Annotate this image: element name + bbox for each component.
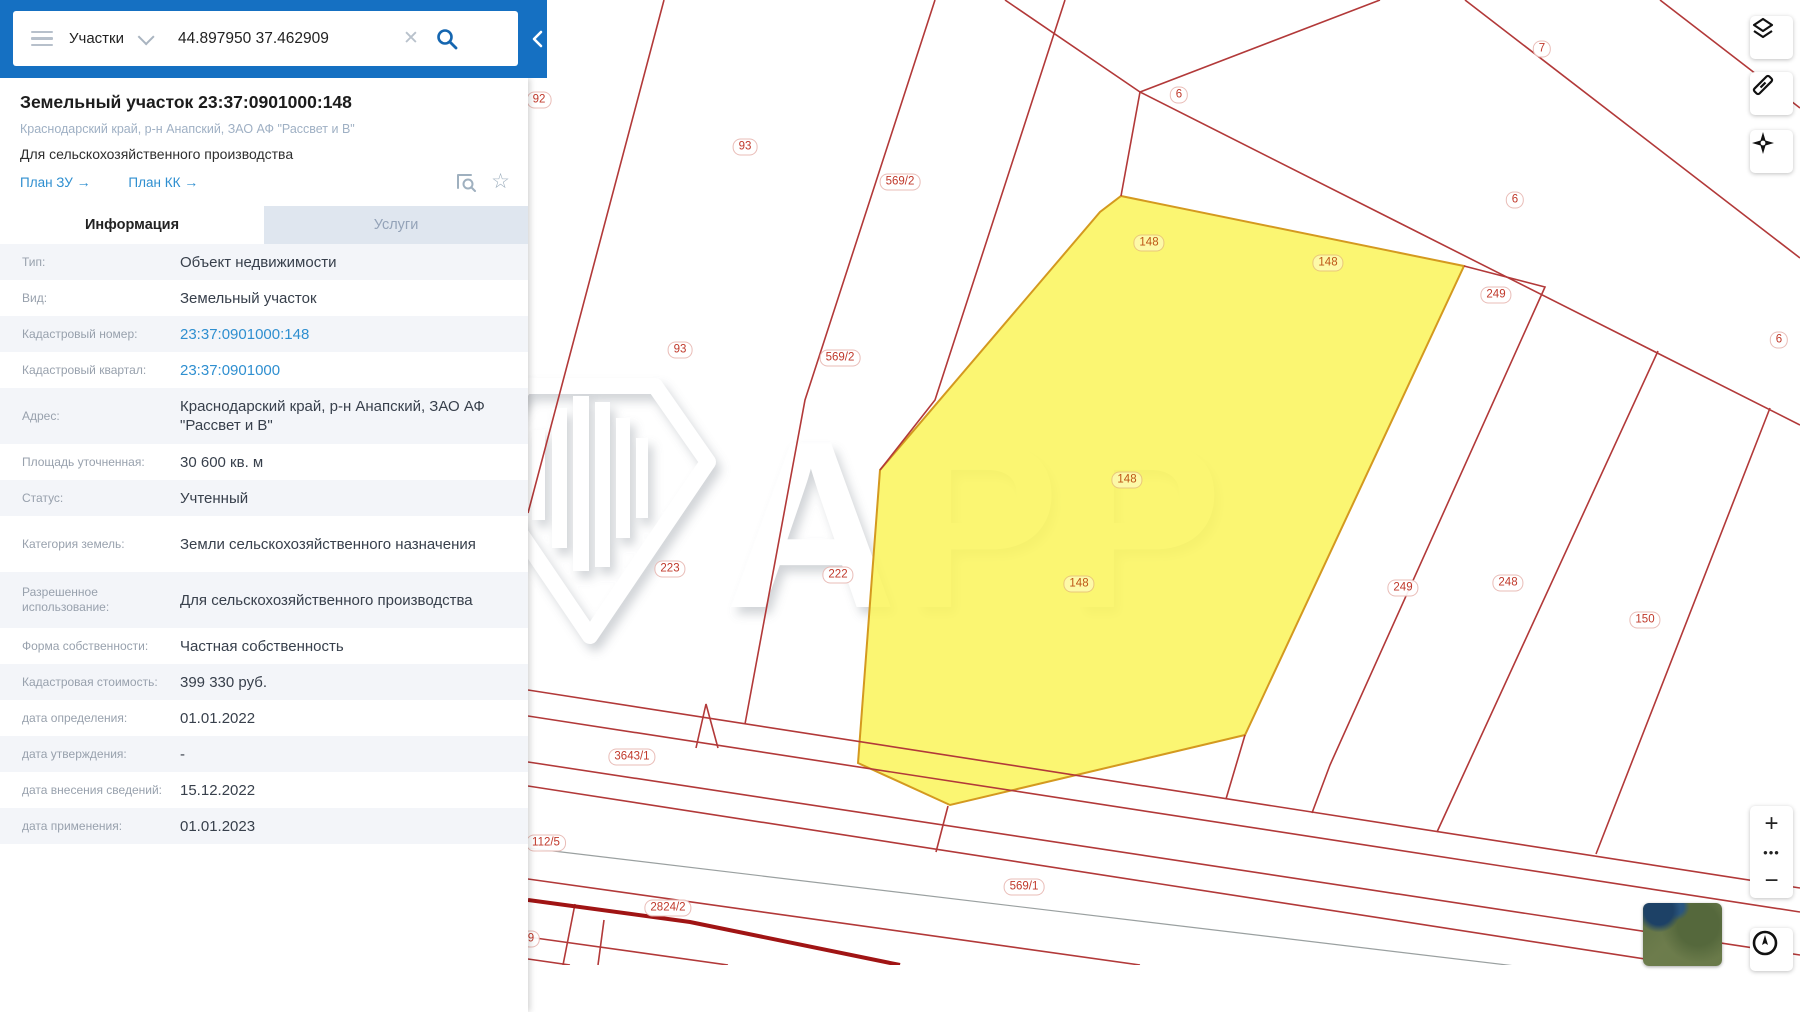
attribute-row: Форма собственности:Частная собственност… xyxy=(0,628,528,664)
attribute-label: Статус: xyxy=(22,491,180,506)
attribute-row: дата определения:01.01.2022 xyxy=(0,700,528,736)
attribute-rows: Тип:Объект недвижимостиВид:Земельный уча… xyxy=(0,244,528,844)
attribute-value: Земли сельскохозяйственного назначения xyxy=(180,535,490,554)
arrow-right-icon: → xyxy=(77,174,91,190)
clear-search-icon[interactable]: ✕ xyxy=(403,29,419,48)
attribute-value-link[interactable]: 23:37:0901000:148 xyxy=(180,325,323,344)
position-icon xyxy=(1750,130,1776,156)
parcel-title: Земельный участок 23:37:0901000:148 xyxy=(20,92,508,113)
selected-parcel-148[interactable] xyxy=(858,196,1464,805)
search-document-button[interactable] xyxy=(455,172,477,192)
locate-button[interactable] xyxy=(1750,130,1793,173)
attribute-row: Кадастровый номер:23:37:0901000:148 xyxy=(0,316,528,352)
attribute-value-link[interactable]: 23:37:0901000 xyxy=(180,361,294,380)
attribute-label: Площадь уточненная: xyxy=(22,455,180,470)
attribute-row: Площадь уточненная:30 600 кв. м xyxy=(0,444,528,480)
search-box: Участки ✕ xyxy=(13,11,518,66)
attribute-label: Кадастровый номер: xyxy=(22,327,180,342)
attribute-label: дата применения: xyxy=(22,819,180,834)
app-window: АРР xyxy=(0,0,1800,1012)
search-category-dropdown[interactable]: Участки xyxy=(69,30,150,47)
search-topbar: Участки ✕ xyxy=(0,0,547,78)
compass-icon xyxy=(1750,928,1780,958)
attribute-label: Форма собственности: xyxy=(22,639,180,654)
search-input[interactable] xyxy=(176,29,395,49)
search-category-label: Участки xyxy=(69,30,124,47)
parcel-address-subtitle: Краснодарский край, р-н Анапский, ЗАО АФ… xyxy=(20,122,508,136)
plan-zu-link[interactable]: План ЗУ → xyxy=(20,175,91,190)
attribute-row: дата внесения сведений:15.12.2022 xyxy=(0,772,528,808)
attribute-label: Кадастровый квартал: xyxy=(22,363,180,378)
menu-icon[interactable] xyxy=(31,27,53,51)
collapse-panel-button[interactable] xyxy=(528,26,547,52)
layers-icon xyxy=(1750,16,1776,42)
ruler-icon xyxy=(1750,72,1776,98)
zoom-levels-button[interactable]: ••• xyxy=(1763,841,1780,863)
attribute-row: Статус:Учтенный xyxy=(0,480,528,516)
attribute-label: Вид: xyxy=(22,291,180,306)
attribute-label: дата утверждения: xyxy=(22,747,180,762)
zoom-control: + ••• − xyxy=(1750,806,1793,898)
thick-road xyxy=(528,900,900,965)
attribute-value: 01.01.2022 xyxy=(180,709,269,728)
attribute-label: Разрешенное использование: xyxy=(22,585,180,615)
attribute-row: дата применения:01.01.2023 xyxy=(0,808,528,844)
attribute-value: Для сельскохозяйственного производства xyxy=(180,591,487,610)
attribute-row: дата утверждения:- xyxy=(0,736,528,772)
attribute-row: Адрес:Краснодарский край, р-н Анапский, … xyxy=(0,388,528,444)
attribute-value: 01.01.2023 xyxy=(180,817,269,836)
search-icon xyxy=(435,27,459,51)
compass-button[interactable] xyxy=(1750,928,1793,971)
zoom-out-button[interactable]: − xyxy=(1750,863,1793,898)
basemap-preview[interactable] xyxy=(1643,903,1722,966)
attribute-row: Категория земель:Земли сельскохозяйствен… xyxy=(0,516,528,572)
search-button[interactable] xyxy=(435,27,459,51)
attribute-label: Категория земель: xyxy=(22,537,180,552)
panel-tabs: Информация Услуги xyxy=(0,206,528,244)
attribute-value: 30 600 кв. м xyxy=(180,453,277,472)
attribute-label: Адрес: xyxy=(22,409,180,424)
attribute-label: дата внесения сведений: xyxy=(22,783,180,798)
chevron-left-icon xyxy=(532,30,543,48)
favorite-button[interactable]: ☆ xyxy=(491,171,510,192)
attribute-value: 399 330 руб. xyxy=(180,673,281,692)
layers-button[interactable] xyxy=(1750,16,1793,59)
document-search-icon xyxy=(455,172,477,192)
parcel-purpose: Для сельскохозяйственного производства xyxy=(20,146,508,162)
attribute-value: - xyxy=(180,745,199,764)
zoom-in-button[interactable]: + xyxy=(1750,806,1793,841)
tab-services[interactable]: Услуги xyxy=(264,206,528,244)
attribute-label: Тип: xyxy=(22,255,180,270)
attribute-row: Вид:Земельный участок xyxy=(0,280,528,316)
parcel-header: Земельный участок 23:37:0901000:148 Крас… xyxy=(0,78,528,200)
star-icon: ☆ xyxy=(491,171,510,192)
tab-information[interactable]: Информация xyxy=(0,206,264,244)
attribute-value: 15.12.2022 xyxy=(180,781,269,800)
attribute-row: Разрешенное использование:Для сельскохоз… xyxy=(0,572,528,628)
attribute-row: Тип:Объект недвижимости xyxy=(0,244,528,280)
attribute-row: Кадастровый квартал:23:37:0901000 xyxy=(0,352,528,388)
attribute-value: Земельный участок xyxy=(180,289,331,308)
info-panel: Земельный участок 23:37:0901000:148 Крас… xyxy=(0,78,528,1012)
attribute-value: Объект недвижимости xyxy=(180,253,350,272)
attribute-label: Кадастровая стоимость: xyxy=(22,675,180,690)
utility-line xyxy=(528,848,1800,1000)
measure-button[interactable] xyxy=(1750,72,1793,115)
attribute-row: Кадастровая стоимость:399 330 руб. xyxy=(0,664,528,700)
plan-kk-link[interactable]: План КК → xyxy=(128,175,198,190)
attribute-value: Учтенный xyxy=(180,489,262,508)
attribute-value: Краснодарский край, р-н Анапский, ЗАО АФ… xyxy=(180,397,528,435)
chevron-down-icon xyxy=(138,28,155,45)
arrow-right-icon: → xyxy=(184,174,198,190)
attribute-value: Частная собственность xyxy=(180,637,358,656)
attribute-label: дата определения: xyxy=(22,711,180,726)
